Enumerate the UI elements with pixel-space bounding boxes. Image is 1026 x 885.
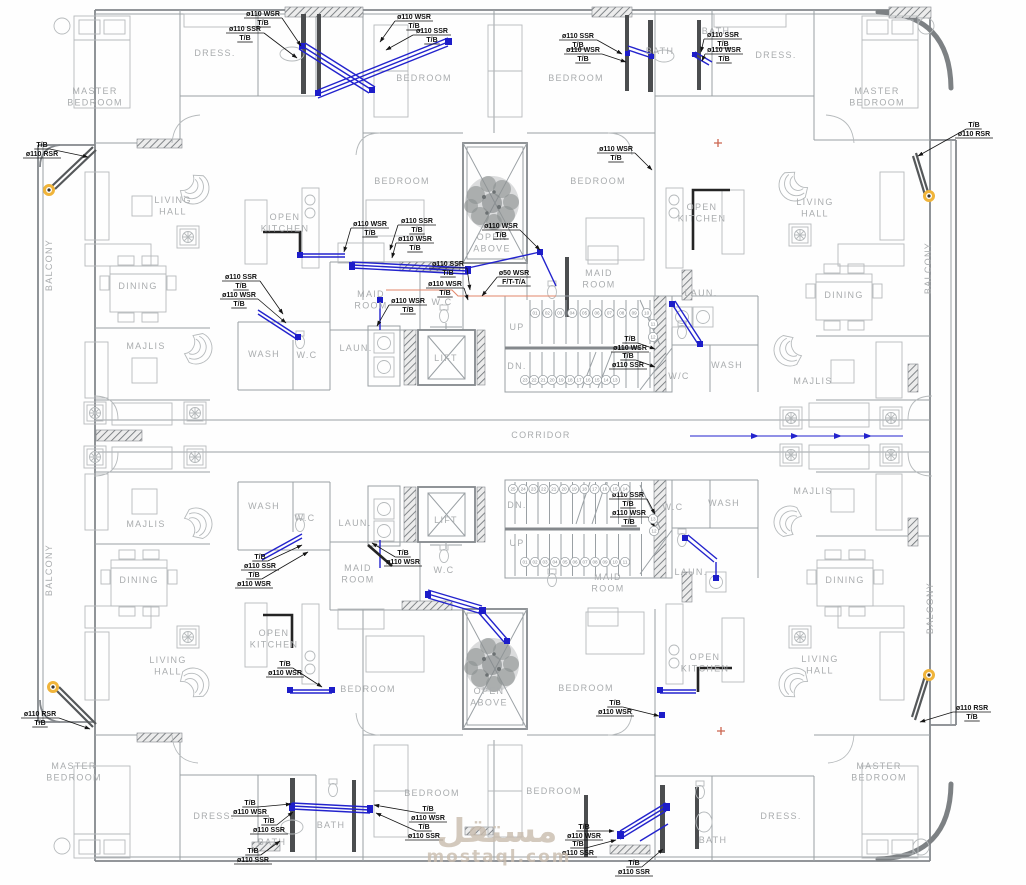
majlis-br: MAJLIS [793,486,832,496]
svg-text:14: 14 [603,378,609,383]
pipe-annotation-text: ø110 WSR [233,809,267,816]
svg-text:15: 15 [594,378,600,383]
svg-text:25: 25 [510,487,516,492]
stair-tread-number: 18 [565,375,574,384]
living-hall-tr-text: LIVING [796,197,833,207]
stair-tread-number: 18 [580,484,589,493]
pipe-annotation-text: T/B [622,353,633,360]
annotation-leader-arrow [392,243,396,258]
pipe-annotation-text: ø110 SSR [225,274,257,281]
annotation-leader-arrow [701,39,704,52]
svg-text:07: 07 [582,560,588,565]
pipe-annotation-text: ø110 WSR [599,146,633,153]
pipe-annotation-text: T/B [411,227,422,234]
floor-plan-drawing: MASTERBEDROOMDRESS.BEDROOMBEDROOMBATHBAT… [0,0,1026,885]
open-above-top-text: ABOVE [473,244,511,254]
stair-tread-number: 17 [574,375,583,384]
stair-tread-number: 10 [610,557,619,566]
stair-tread-number: 14 [621,484,630,493]
laun-upper-right-text: LAUN. [684,288,717,298]
svg-text:19: 19 [558,378,564,383]
pipe-annotation: ø110 WSRT/B [597,146,652,170]
tree-lower-icon [464,638,519,692]
svg-text:18: 18 [582,487,588,492]
svg-text:02: 02 [545,311,551,316]
svg-text:23: 23 [522,378,528,383]
annotation-leader-arrow [258,804,291,807]
majlis-br-text: MAJLIS [793,486,832,496]
svg-text:13: 13 [612,378,618,383]
stair-tread-number: 15 [610,484,619,493]
open-above-bottom: OPENABOVE [470,686,508,708]
bath-bl: BATH [258,837,287,847]
wc-lower-left: W.C [295,513,316,523]
annotation-leader-arrow [602,54,626,62]
svg-text:03: 03 [557,311,563,316]
living-hall-br: LIVINGHALL [801,654,838,676]
lift-upper: LIFT [434,353,458,363]
pipe-annotation-text: ø110 SSR [432,261,464,268]
maid-room-lower-left-text: ROOM [341,575,374,585]
svg-text:22: 22 [541,487,547,492]
wc-upper-center: W.C [432,297,453,307]
pipe-annotation-text: ø110 RSR [26,151,58,158]
dress-tl: DRESS. [194,48,235,58]
svg-text:17: 17 [592,487,598,492]
master-bedroom-tr-text: BEDROOM [849,98,905,108]
master-bedroom-bl-text: BEDROOM [46,773,102,783]
bedroom-bottom-2: BEDROOM [526,786,582,796]
stair-tread-number: 06 [592,308,601,317]
pipe-annotation-text: T/B [263,818,274,825]
majlis-tl: MAJLIS [126,341,165,351]
svg-text:19: 19 [572,487,578,492]
pipe-annotation-text: ø110 RSR [958,131,990,138]
tree-upper-icon [464,176,519,230]
balcony-left-bottom: BALCONY [44,544,54,596]
svg-text:01: 01 [532,311,538,316]
annotation-leader-arrow [482,277,497,296]
stair-tread-number: 16 [583,375,592,384]
dining-tl-text: DINING [118,281,157,291]
drainage-pipes-black [263,190,732,692]
master-bedroom-tl-text: BEDROOM [67,98,123,108]
open-kitchen-br-text: KITCHEN [681,664,730,674]
pipe-annotation: ø110 WSRT/B [344,221,389,252]
dn-upper-text: DN. [507,361,526,371]
stair-tread-number: 12 [648,332,657,341]
wc-lower-center: W.C [434,565,455,575]
reference-cross-markers [714,139,725,735]
annotation-leader-arrow [464,288,468,300]
wc-lower-right-text: W.C [663,502,684,512]
annotation-leader-arrow [635,153,652,170]
balcony-right-top-text: BALCONY [923,242,933,294]
pipe-annotation-text: ø110 RSR [956,705,988,712]
master-bedroom-br: MASTERBEDROOM [851,761,907,783]
dress-tr: DRESS. [755,50,796,60]
bedroom-mid-1: BEDROOM [374,176,430,186]
stair-tread-number: 12 [649,526,658,535]
majlis-tr: MAJLIS [793,376,832,386]
up-upper: UP [509,322,524,332]
maid-room-top-left-text: MAID [357,289,385,299]
wash-lower-left: WASH [248,501,280,511]
dn-lower-text: DN. [507,500,526,510]
stair-tread-number: 23 [520,375,529,384]
stair-tread-number: 11 [620,557,629,566]
pipe-annotation: T/Bø110 WSR [266,661,322,687]
living-hall-tl-text: LIVING [154,195,191,205]
pipe-annotation-text: T/B [248,572,259,579]
plumbing-stack-walls [290,14,701,857]
pipe-annotation-text: T/B [254,554,265,561]
stair-tread-number: 11 [648,319,657,328]
pipe-fittings [287,38,719,839]
pipe-annotation: ø110 WSRT/B [564,47,626,63]
stair-tread-number: 13 [610,375,619,384]
stair-tread-number: 21 [538,375,547,384]
svg-text:22: 22 [531,378,537,383]
balcony-left-top: BALCONY [44,239,54,291]
pipe-annotation-text: T/B [439,290,450,297]
svg-text:11: 11 [651,322,656,327]
balcony-right-bottom: BALCONY [925,582,935,634]
svg-text:23: 23 [531,487,537,492]
pipe-annotation-text: ø110 SSR [562,33,594,40]
master-bedroom-tr-text: MASTER [854,86,899,96]
pipe-annotation-text: ø110 WSR [222,292,256,299]
dn-lower: DN. [507,500,526,510]
pipe-annotation-text: T/B [609,700,620,707]
open-kitchen-bl-text: OPEN [259,628,290,638]
annotation-leader-arrow [282,18,301,46]
bedroom-top-2-text: BEDROOM [548,73,604,83]
svg-text:02: 02 [532,560,538,565]
stair-tread-number: 21 [549,484,558,493]
wc-lower-right: W.C [663,502,684,512]
pipe-annotation: ø110 WSRT/B [392,236,434,258]
watermark-arabic: مستقل [437,811,558,850]
pipe-annotation-text: ø110 WSR [707,47,741,54]
bedroom-low-2: BEDROOM [558,683,614,693]
wc-upper-right-text: W/C [668,371,689,381]
pipe-annotation-text: T/B [572,841,583,848]
svg-text:09: 09 [632,311,638,316]
svg-text:04: 04 [552,560,558,565]
svg-text:16: 16 [585,378,591,383]
pipe-annotation-text: T/B [623,519,634,526]
pipe-annotation-text: T/B [364,230,375,237]
wc-upper-right: W/C [668,371,689,381]
laun-lower-left: LAUN. [338,518,371,528]
pipe-annotation-text: T/B [718,56,729,63]
lift-lower: LIFT [434,515,458,525]
stair-tread-number: 15 [592,375,601,384]
dress-bl: DRESS. [193,811,234,821]
bedroom-low-1: BEDROOM [340,684,396,694]
bedroom-low-1-text: BEDROOM [340,684,396,694]
pipe-annotation-text: ø110 SSR [618,869,650,876]
master-bedroom-br-text: MASTER [856,761,901,771]
open-kitchen-tl-text: OPEN [270,212,301,222]
stair-tread-number: 17 [590,484,599,493]
pipe-annotation-text: ø50 WSR [499,270,529,277]
annotation-leader-arrow [386,35,413,50]
stair-tread-number: 07 [580,557,589,566]
pipe-annotation-text: T/B [966,714,977,721]
living-hall-bl: LIVINGHALL [149,655,186,677]
floor-plan-page: MASTERBEDROOMDRESS.BEDROOMBEDROOMBATHBAT… [0,0,1026,885]
laun-lower-right: LAUN. [674,567,707,577]
bedroom-mid-2-text: BEDROOM [570,176,626,186]
open-kitchen-tr-text: OPEN [687,202,718,212]
svg-text:10: 10 [612,560,618,565]
laun-upper-left: LAUN. [339,343,372,353]
pipe-annotation: ø110 SSRT/B [226,26,297,58]
pipe-annotation-text: T/B [426,37,437,44]
svg-text:18: 18 [567,378,573,383]
watermark-latin: mostaql.com [426,847,571,867]
rsr-outlet-marker [45,186,934,692]
pipe-annotation-text: ø110 SSR [612,362,644,369]
annotation-leader-arrow [380,21,395,42]
corridor: CORRIDOR [511,430,570,440]
living-hall-br-text: LIVING [801,654,838,664]
stair-tread-number: 14 [601,375,610,384]
master-bedroom-br-text: BEDROOM [851,773,907,783]
pipe-annotation-text: ø110 WSR [566,47,600,54]
stair-tread-number: 09 [600,557,609,566]
annotation-leader-arrow [920,712,953,722]
svg-text:20: 20 [549,378,555,383]
open-kitchen-tr: OPENKITCHEN [678,202,727,224]
pipe-annotation: ø110 WSRT/B [220,292,286,323]
pipe-annotation-text: ø110 WSR [386,559,420,566]
pipe-annotation-text: ø110 WSR [353,221,387,228]
pipe-annotation-text: T/B [622,501,633,508]
bedroom-mid-2: BEDROOM [570,176,626,186]
dress-br: DRESS. [760,811,801,821]
corridor-text: CORRIDOR [511,430,570,440]
stair-tread-number: 01 [520,557,529,566]
wash-upper-left-text: WASH [248,349,280,359]
open-above-bottom-text: ABOVE [470,698,508,708]
stair-tread-number: 20 [547,375,556,384]
corner-parapet-curve-br [878,784,951,859]
drainage-pipes-blue [258,38,903,841]
lift-upper-text: LIFT [434,353,458,363]
pipe-annotation-text: T/B [279,661,290,668]
maid-room-lower-right-text: MAID [594,572,622,582]
pipe-annotation-text: T/B [610,155,621,162]
laun-upper-right: LAUN. [684,288,717,298]
stair-tread-number: 09 [630,308,639,317]
pipe-annotation-text: ø110 RSR [24,711,56,718]
watermark: مستقل mostaql.com [426,811,571,867]
up-lower-text: UP [509,538,524,548]
bath-br-text: BATH [699,835,728,845]
dining-tr: DINING [824,290,863,300]
bath-top-center: BATH [646,46,675,56]
svg-text:13: 13 [650,517,656,522]
pipe-annotation: ø110 SSRT/B [386,28,451,50]
master-bedroom-tl: MASTERBEDROOM [67,86,123,108]
pipe-annotation: ø110 WSRT/B [702,47,743,63]
wc-lower-center-text: W.C [434,565,455,575]
stair-tread-number: 08 [590,557,599,566]
pipe-annotation-text: ø110 SSR [416,28,448,35]
annotation-leader-arrow [597,40,622,54]
pipe-annotation-text: T/B [233,301,244,308]
stair-tread-number: 23 [529,484,538,493]
stair-tread-number: 04 [568,308,577,317]
bedroom-bottom-2-text: BEDROOM [526,786,582,796]
stair-tread-number: 08 [617,308,626,317]
pipe-annotation: T/Bø110 WSR [231,800,291,816]
svg-text:08: 08 [619,311,625,316]
pipe-annotation-text: T/B [36,142,47,149]
pipe-annotation-text: ø110 WSR [391,298,425,305]
svg-text:21: 21 [540,378,546,383]
pipe-annotation-text: ø110 SSR [408,833,440,840]
pipe-annotation-text: ø110 SSR [401,218,433,225]
pipe-annotation-text: ø110 WSR [237,581,271,588]
stair-tread-number: 04 [550,557,559,566]
balcony-right-bottom-text: BALCONY [925,582,935,634]
pipe-annotation-text: ø110 WSR [397,14,431,21]
annotation-leader-arrow [264,33,297,58]
laun-upper-left-text: LAUN. [339,343,372,353]
svg-text:09: 09 [602,560,608,565]
maid-room-top-right: MAIDROOM [582,268,615,290]
svg-text:10: 10 [644,311,650,316]
majlis-bl-text: MAJLIS [126,519,165,529]
living-hall-tr-text: HALL [801,209,829,219]
wc-lower-left-text: W.C [295,513,316,523]
bath-bottom-center-text: BATH [317,820,346,830]
pipe-annotation: T/Bø110 WSR [565,824,614,840]
pipe-annotation-text: T/B [244,800,255,807]
stair-tread-number: 19 [556,375,565,384]
svg-text:01: 01 [522,560,528,565]
stair-tread-number: 07 [605,308,614,317]
pipe-annotation-text: T/B [624,336,635,343]
pipe-annotation-text: T/B [578,824,589,831]
svg-text:20: 20 [561,487,567,492]
master-bedroom-bl: MASTERBEDROOM [46,761,102,783]
stair-tread-number: 10 [642,308,651,317]
open-kitchen-br-text: OPEN [690,652,721,662]
pipe-annotation: ø50 WSRF/T-T/A [482,270,531,296]
dining-bl-text: DINING [119,575,158,585]
pipe-annotation: T/Bø110 WSR [596,700,659,716]
dress-tl-text: DRESS. [194,48,235,58]
pipe-annotation-text: T/B [235,283,246,290]
pipe-annotation-text: ø110 WSR [598,709,632,716]
maid-room-lower-left: MAIDROOM [341,563,374,585]
maid-room-top-left: MAIDROOM [354,289,387,311]
wash-lower-right-text: WASH [708,498,740,508]
stair-tread-number: 03 [555,308,564,317]
stair-tread-number: 03 [540,557,549,566]
pipe-annotation-text: ø110 SSR [253,827,285,834]
stair-tread-number: 19 [570,484,579,493]
wash-lower-left-text: WASH [248,501,280,511]
master-bedroom-tr: MASTERBEDROOM [849,86,905,108]
pipe-annotation: T/Bø110 SSR [241,545,302,570]
lift-lower-text: LIFT [434,515,458,525]
annotation-leader-arrow [918,129,966,156]
living-hall-tr: LIVINGHALL [796,197,833,219]
stair-tread-number: 05 [560,557,569,566]
laun-lower-left-text: LAUN. [338,518,371,528]
bath-top-center-text: BATH [646,46,675,56]
svg-text:15: 15 [612,487,618,492]
pipe-annotation-text: T/B [628,860,639,867]
living-hall-bl-text: HALL [154,667,182,677]
svg-text:11: 11 [623,560,628,565]
stair-tread-number: 02 [543,308,552,317]
pipe-annotation-text: ø110 SSR [244,563,276,570]
master-bedroom-tl-text: MASTER [72,86,117,96]
dining-br-text: DINING [825,575,864,585]
svg-text:03: 03 [542,560,548,565]
dining-br: DINING [825,575,864,585]
majlis-bl: MAJLIS [126,519,165,529]
pipe-annotation-text: T/B [422,806,433,813]
pipe-annotation-text: ø110 WSR [484,223,518,230]
wash-upper-right: WASH [711,360,743,370]
laun-lower-right-text: LAUN. [674,567,707,577]
maid-room-top-left-text: ROOM [354,301,387,311]
open-kitchen-tr-text: KITCHEN [678,214,727,224]
pipe-annotation-text: T/B [247,848,258,855]
annotation-leader-arrow [390,225,398,250]
open-kitchen-bl-text: KITCHEN [250,640,299,650]
fire-line-orange [386,290,556,296]
stair-tread-number: 02 [530,557,539,566]
pipe-annotation-text: ø110 SSR [237,857,269,864]
svg-text:16: 16 [602,487,608,492]
annotation-leader-arrow [260,281,283,314]
svg-text:05: 05 [562,560,568,565]
svg-text:06: 06 [572,560,578,565]
bedroom-mid-1-text: BEDROOM [374,176,430,186]
svg-text:05: 05 [582,311,588,316]
maid-room-lower-left-text: MAID [344,563,372,573]
annotation-leader-arrow [374,805,420,813]
pipe-annotation-text: ø110 SSR [707,32,739,39]
dress-br-text: DRESS. [760,811,801,821]
majlis-tr-text: MAJLIS [793,376,832,386]
pipe-annotation-text: ø110 WSR [428,281,462,288]
stair-tread-number: 05 [580,308,589,317]
wash-lower-right: WASH [708,498,740,508]
svg-text:14: 14 [623,487,629,492]
living-hall-tl-text: HALL [159,207,187,217]
bedroom-bottom-1-text: BEDROOM [404,788,460,798]
master-bedroom-bl-text: MASTER [51,761,96,771]
pipe-annotation-text: ø110 WSR [612,510,646,517]
dn-upper: DN. [507,361,526,371]
annotation-leader-arrow [344,228,351,252]
corner-parapet-curve-tr [878,12,951,88]
maid-room-top-right-text: MAID [585,268,613,278]
wc-upper-left-text: W.C [297,350,318,360]
bedroom-top-2: BEDROOM [548,73,604,83]
wash-upper-left: WASH [248,349,280,359]
